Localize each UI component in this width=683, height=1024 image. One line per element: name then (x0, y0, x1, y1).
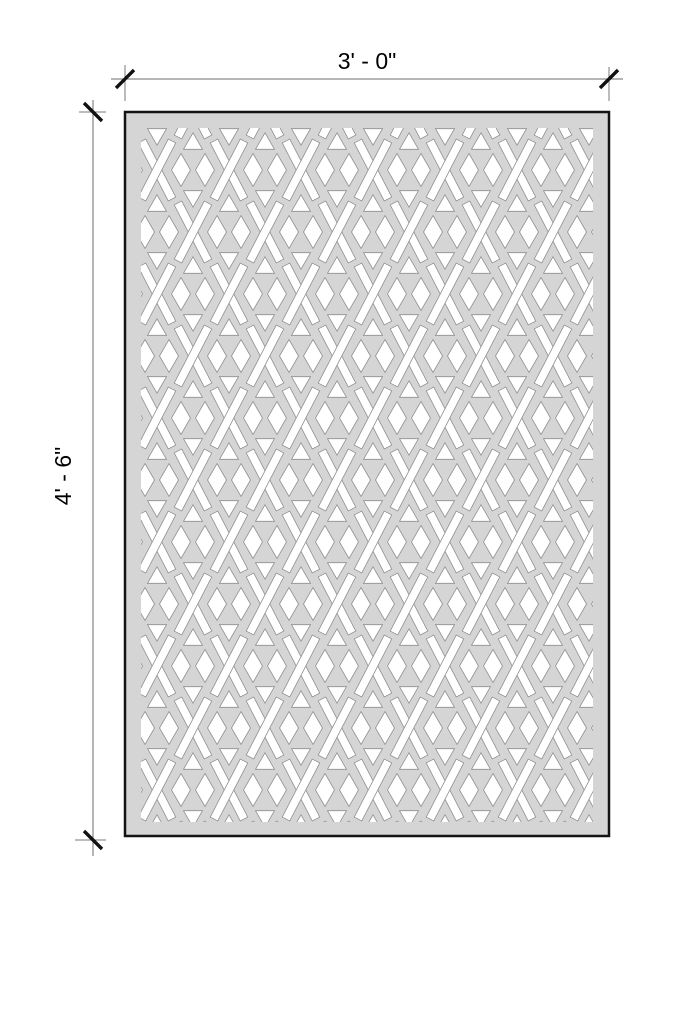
panel-elevation-svg: 3' - 0" 4' - 6" (0, 0, 683, 1024)
lattice-pattern-area (141, 128, 593, 822)
width-dimension-label: 3' - 0" (338, 48, 397, 74)
height-dimension-label: 4' - 6" (50, 447, 76, 506)
width-dimension: 3' - 0" (111, 48, 623, 101)
height-dimension: 4' - 6" (50, 100, 106, 856)
drawing-canvas: 3' - 0" 4' - 6" (0, 0, 683, 1024)
